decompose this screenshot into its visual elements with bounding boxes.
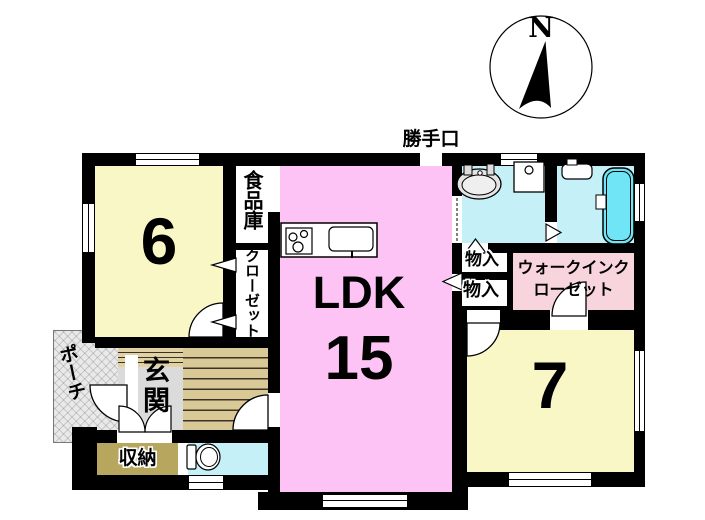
window: [188, 475, 224, 490]
window: [82, 203, 95, 253]
back-door-opening: [420, 153, 442, 166]
wic-door-opening: [550, 310, 588, 330]
wall: [452, 472, 468, 510]
wic-label-line2: ローゼット: [533, 282, 613, 299]
pantry-opening: [268, 166, 280, 212]
wic-label: ウォークインク ローゼット: [513, 258, 634, 301]
wall: [223, 166, 236, 348]
wall: [452, 330, 467, 472]
washroom: [462, 166, 545, 243]
window: [508, 472, 592, 487]
wall: [268, 212, 280, 348]
window: [634, 183, 645, 222]
wall: [95, 337, 268, 348]
window: [322, 494, 408, 508]
window: [135, 153, 200, 166]
bath-door-opening: [545, 222, 557, 243]
bathroom: [557, 166, 634, 243]
window: [500, 153, 538, 166]
ldk-size-label: 15: [298, 328, 420, 390]
entrance-label: 玄関: [140, 356, 167, 436]
storage-upper-label: 物入: [453, 251, 511, 268]
room7-size-label: 7: [508, 352, 592, 418]
washroom-door-opening: [452, 196, 462, 243]
hall-ldk-door-opening: [268, 393, 280, 427]
ldk-label: LDK: [298, 270, 420, 315]
wall: [268, 348, 280, 510]
closet-label: クローゼット: [244, 248, 259, 343]
compass-north-label: N: [527, 14, 555, 42]
hallway: [183, 348, 268, 430]
porch-door-opening: [125, 355, 138, 418]
room7-door-opening: [467, 310, 500, 330]
pantry-label: 食品庫: [241, 170, 261, 246]
wall: [72, 475, 268, 490]
wic-label-line1: ウォークインク: [517, 260, 629, 277]
toilet-room: [188, 443, 268, 475]
wall: [82, 166, 95, 343]
toilet-door-opening: [178, 443, 188, 475]
window: [634, 350, 645, 432]
shoe-storage-label: 収納: [97, 449, 178, 468]
floor-plan: N 勝手口 6 食品庫 クローゼット LDK 15 物入 物入 ウォークインク …: [0, 0, 705, 520]
compass-needle-icon: [519, 41, 551, 109]
storage-lower-label: 物入: [451, 281, 511, 299]
room6-size-label: 6: [118, 208, 200, 274]
back-door-label: 勝手口: [388, 130, 474, 149]
